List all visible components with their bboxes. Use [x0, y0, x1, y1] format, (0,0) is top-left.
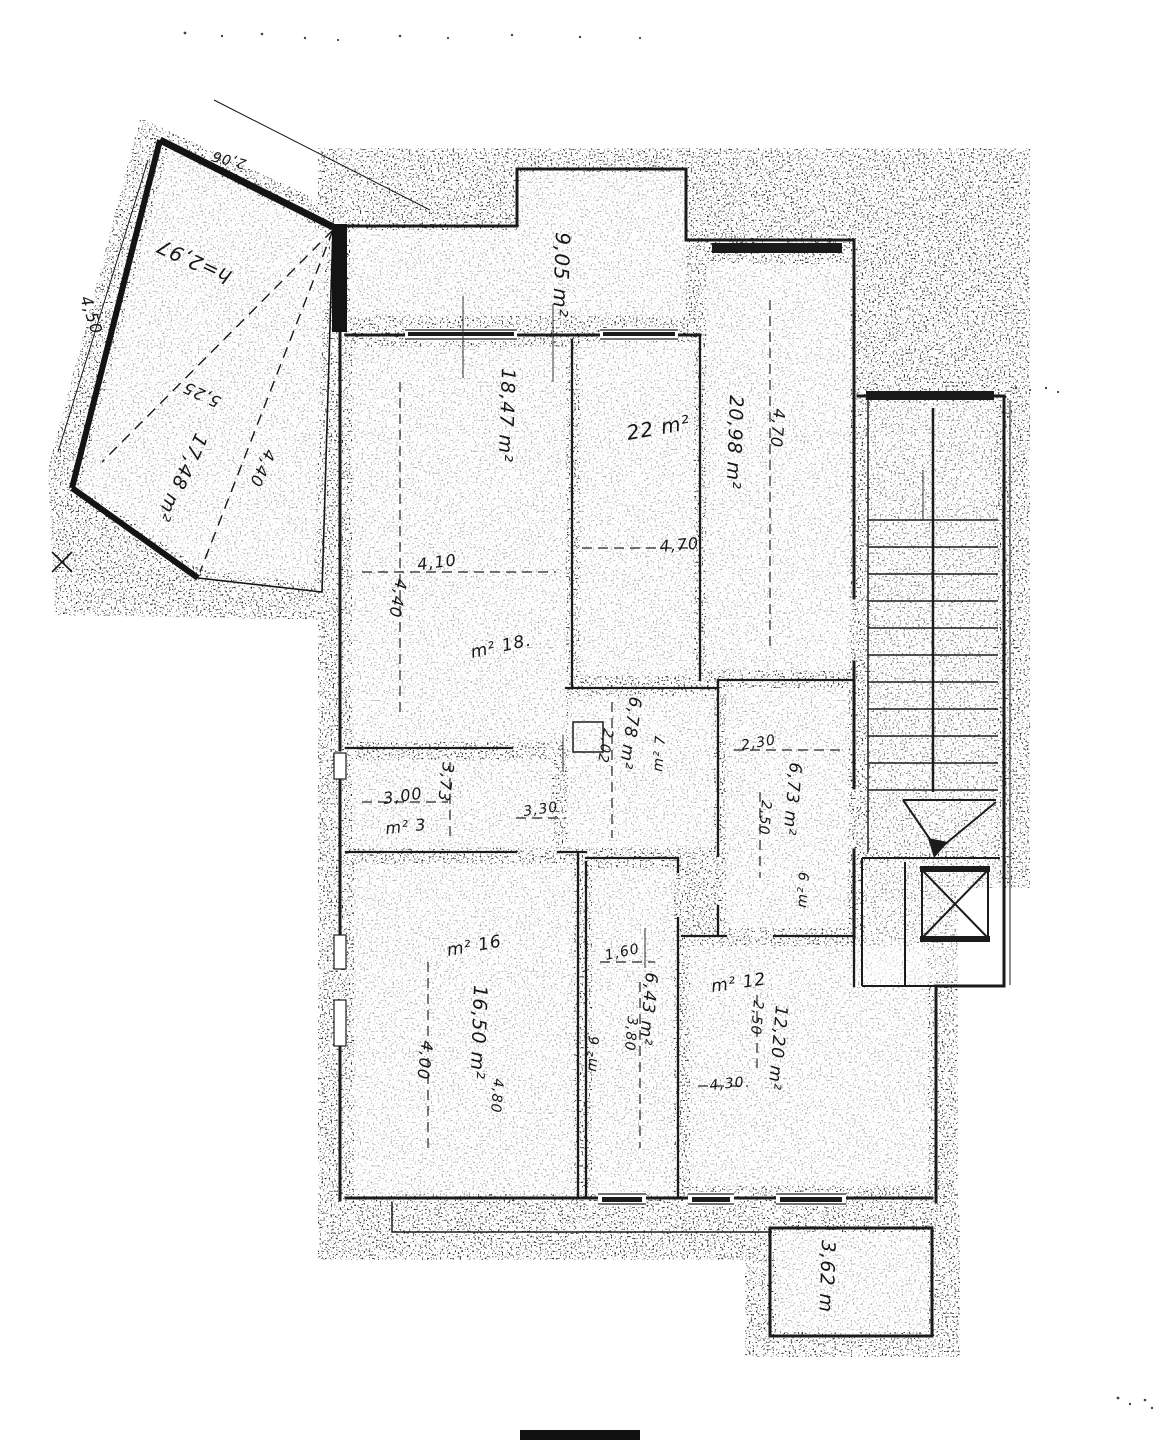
room-g-tag-label: m² 6	[584, 1034, 603, 1072]
room-b-area-label: 20,98 m²	[722, 395, 747, 490]
window-bottom-1	[598, 1192, 646, 1206]
room-f-area-label: 16,50 m²	[466, 985, 491, 1080]
window-top-1	[405, 328, 517, 341]
window-bottom-3	[776, 1192, 846, 1206]
room-h-depth-label: 2,50	[747, 1000, 766, 1036]
room-f-dim-label: 4,80	[487, 1078, 506, 1114]
room-d-tag-label: m² 7	[650, 734, 669, 772]
room-b-height-label: 4,70	[767, 408, 789, 449]
room-c-area-label: 18,47 m²	[494, 368, 519, 463]
room-e-depth-label: 2,50	[755, 800, 774, 836]
window-hatch-top-right	[712, 243, 842, 253]
scan-speckle-texture	[0, 0, 1162, 1440]
room-g-depth-label: 3,80	[621, 1016, 640, 1052]
room-a-width-label: 4,70	[659, 534, 700, 556]
window-hatch-stairwell	[866, 391, 994, 400]
scanned-floor-plan-page: h=2,97 5,25 17,48 m² 4,40 4,50 2,06 9,05…	[0, 0, 1162, 1440]
scale-bar-artifact	[520, 1430, 640, 1440]
wall-chunk	[332, 224, 347, 332]
floor-plan-drawing: h=2,97 5,25 17,48 m² 4,40 4,50 2,06 9,05…	[0, 0, 1162, 1440]
window-top-2	[600, 328, 678, 341]
window-bottom-2	[688, 1192, 734, 1206]
top-balcony-area-label: 9,05 m²	[548, 232, 575, 318]
room-e-tag-label: m² 9	[794, 870, 813, 908]
bottom-balcony-area-label: 3,62 m	[814, 1240, 839, 1314]
